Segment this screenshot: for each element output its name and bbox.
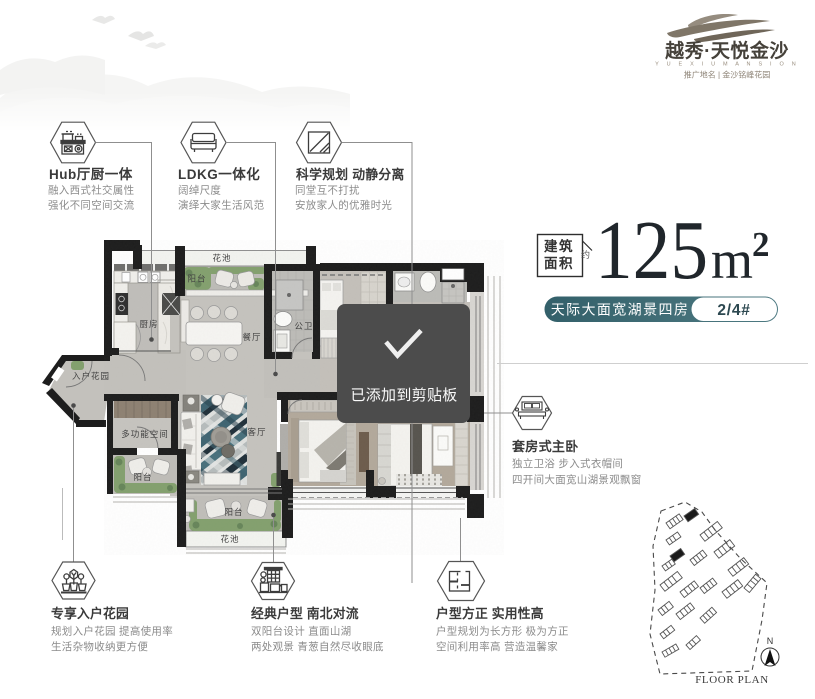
svg-text:经典户型 南北对流: 经典户型 南北对流 xyxy=(251,606,359,621)
svg-text:专享入户花园: 专享入户花园 xyxy=(51,606,129,621)
svg-text:建筑: 建筑 xyxy=(543,238,574,254)
svg-text:Y U E X I U M A N S I O N: Y U E X I U M A N S I O N xyxy=(655,62,799,68)
svg-text:阔绰尺度: 阔绰尺度 xyxy=(178,184,221,197)
svg-text:两处观景 青葱自然尽收眼底: 两处观景 青葱自然尽收眼底 xyxy=(251,640,384,653)
svg-text:已添加到剪贴板: 已添加到剪贴板 xyxy=(350,386,457,404)
svg-text:面积: 面积 xyxy=(544,255,574,271)
svg-text:FLOOR PLAN: FLOOR PLAN xyxy=(695,674,769,686)
svg-text:天际大面宽湖景四房: 天际大面宽湖景四房 xyxy=(551,302,690,318)
svg-text:规划入户花园 提高使用率: 规划入户花园 提高使用率 xyxy=(51,625,173,638)
svg-text:套房式主卧: 套房式主卧 xyxy=(511,439,579,454)
svg-text:N: N xyxy=(767,636,774,646)
svg-text:空间利用率高 营造温馨家: 空间利用率高 营造温馨家 xyxy=(436,640,558,653)
svg-text:演绎大家生活风范: 演绎大家生活风范 xyxy=(178,199,265,212)
svg-text:125: 125 xyxy=(595,204,708,297)
svg-text:2/4#: 2/4# xyxy=(717,302,750,319)
svg-text:约: 约 xyxy=(581,249,590,260)
svg-text:安放家人的优雅时光: 安放家人的优雅时光 xyxy=(295,199,392,212)
svg-text:Hub厅厨一体: Hub厅厨一体 xyxy=(49,166,133,182)
svg-text:2: 2 xyxy=(752,225,770,264)
svg-text:融入西式社交属性: 融入西式社交属性 xyxy=(48,184,134,197)
svg-text:户型规划为长方形 极为方正: 户型规划为长方形 极为方正 xyxy=(436,625,569,638)
svg-text:生活杂物收纳更方便: 生活杂物收纳更方便 xyxy=(51,640,148,653)
svg-text:强化不同空间交流: 强化不同空间交流 xyxy=(48,199,135,212)
svg-text:双阳台设计 直面山湖: 双阳台设计 直面山湖 xyxy=(251,625,351,638)
svg-text:独立卫浴 步入式衣帽间: 独立卫浴 步入式衣帽间 xyxy=(512,457,623,470)
svg-text:科学规划 动静分离: 科学规划 动静分离 xyxy=(296,167,405,182)
svg-text:推广地名 | 金沙铭峰花园: 推广地名 | 金沙铭峰花园 xyxy=(684,70,771,80)
svg-text:越秀·天悦金沙: 越秀·天悦金沙 xyxy=(664,39,789,62)
svg-text:户型方正 实用性高: 户型方正 实用性高 xyxy=(436,606,544,621)
svg-text:LDKG一体化: LDKG一体化 xyxy=(178,166,260,182)
svg-text:同堂互不打扰: 同堂互不打扰 xyxy=(295,184,360,197)
svg-text:四开间大面宽山湖景观飘窗: 四开间大面宽山湖景观飘窗 xyxy=(512,473,642,486)
svg-text:m: m xyxy=(711,230,753,290)
